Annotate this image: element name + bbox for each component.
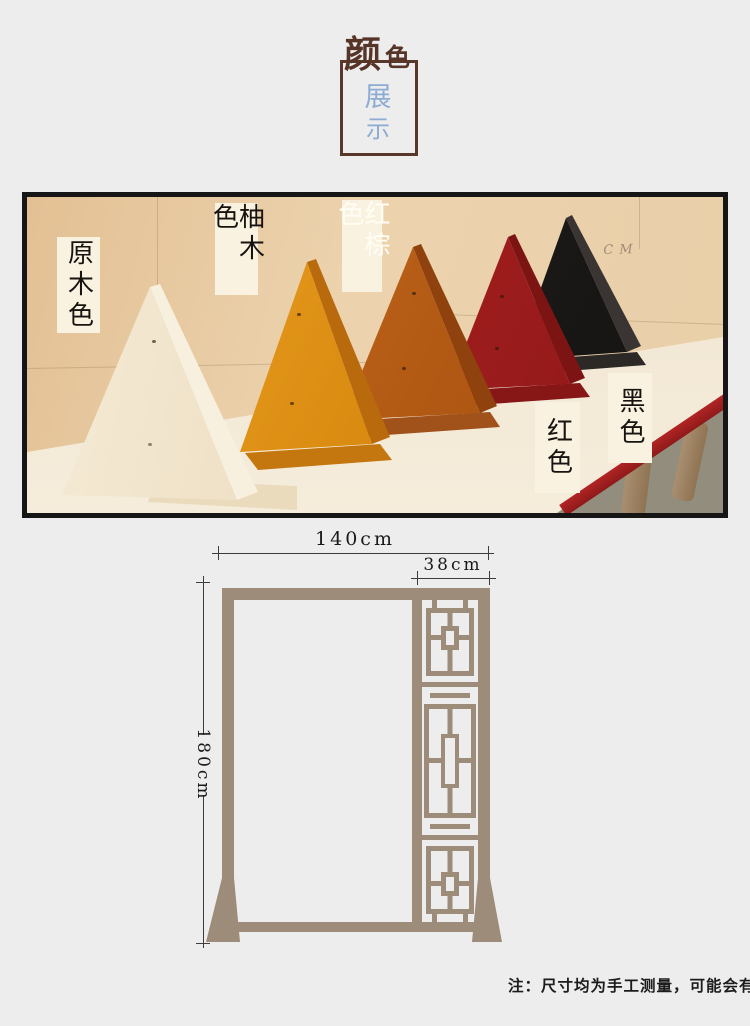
label-red: 红色 — [535, 402, 580, 493]
dim-tick — [196, 943, 210, 944]
dim-line-140 — [212, 553, 494, 554]
photo-scene: 7 CM 原木色 柚木色 红棕色 红色 黑色 — [27, 197, 723, 513]
title-char-yan: 颜 — [344, 36, 381, 73]
screw-holes — [152, 340, 156, 343]
title-char-se: 色 — [385, 45, 410, 70]
dim-tick — [196, 582, 210, 583]
dim-text-lattice-width: 38cm — [408, 555, 498, 575]
wall-seam — [639, 197, 640, 249]
dim-tick — [218, 546, 219, 560]
dimension-diagram: 140cm 38cm 180cm — [190, 528, 520, 953]
screw-holes — [500, 295, 504, 298]
label-natural-wood: 原木色 — [57, 237, 100, 333]
dim-line-38 — [411, 578, 496, 579]
title-char-zhan: 展 — [358, 84, 398, 111]
dim-line-180-lower — [203, 795, 204, 948]
dim-text-height: 180cm — [193, 725, 213, 805]
screw-holes — [297, 313, 301, 316]
label-teak: 柚木色 — [215, 203, 258, 295]
color-display-photo: 7 CM 原木色 柚木色 红棕色 红色 黑色 — [22, 192, 728, 518]
dim-text-total-width: 140cm — [285, 528, 425, 550]
title-char-shi: 示 — [358, 117, 398, 141]
dim-line-180-upper — [203, 576, 204, 735]
label-black: 黑色 — [608, 373, 652, 463]
screen-frame-drawing — [190, 528, 520, 953]
product-detail-page: { "title": { "main_1": "颜", "main_2": "色… — [0, 0, 750, 1026]
measurement-disclaimer: 注：尺寸均为手工测量，可能会有误差 — [508, 974, 750, 996]
label-red-brown: 红棕色 — [342, 200, 382, 292]
screw-holes — [412, 292, 416, 295]
